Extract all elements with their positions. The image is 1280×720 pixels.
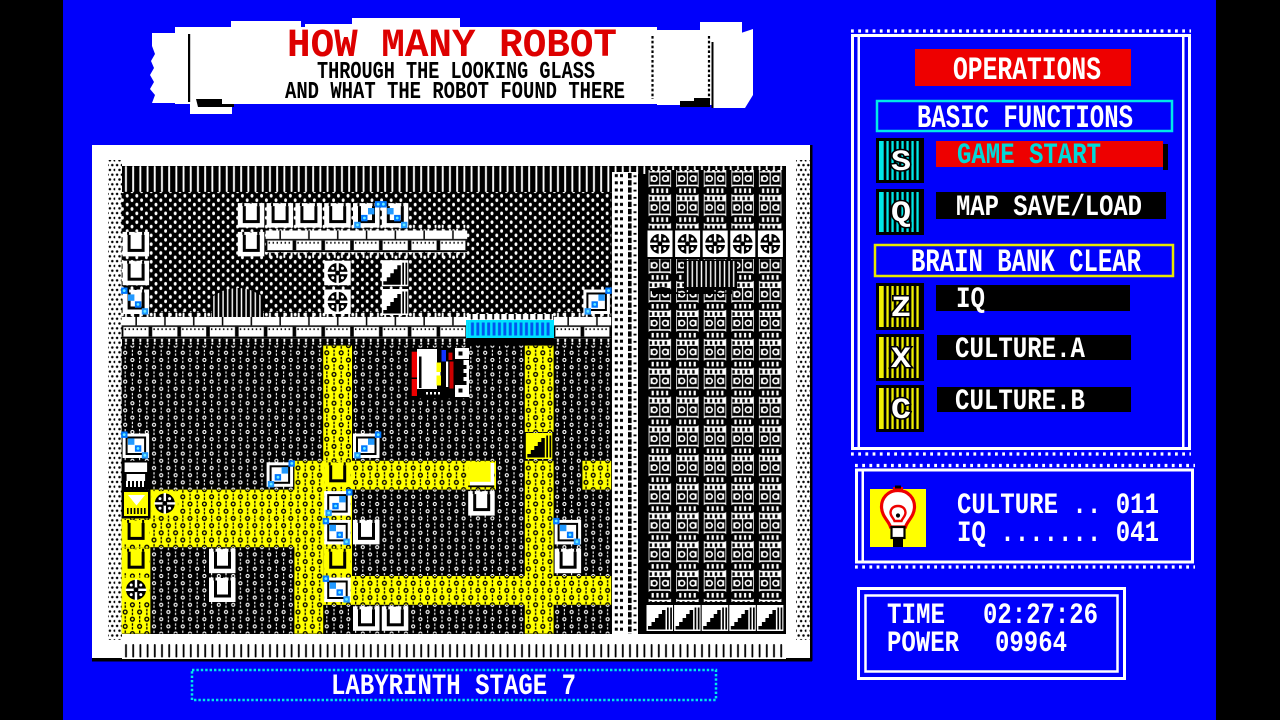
svg-text:09964: 09964	[995, 627, 1067, 661]
svg-text:CULTURE.B: CULTURE.B	[955, 385, 1085, 419]
svg-text:OPERATIONS: OPERATIONS	[953, 52, 1101, 89]
svg-text:X: X	[891, 343, 911, 377]
svg-text:Z: Z	[891, 292, 911, 326]
svg-text:GAME START: GAME START	[957, 139, 1101, 173]
svg-text:BRAIN BANK CLEAR: BRAIN BANK CLEAR	[911, 244, 1142, 281]
svg-text:MAP SAVE/LOAD: MAP SAVE/LOAD	[956, 191, 1142, 225]
svg-text:IQ ....... 041: IQ ....... 041	[957, 517, 1159, 551]
svg-text:S: S	[891, 146, 911, 180]
svg-text:LABYRINTH STAGE 7: LABYRINTH STAGE 7	[331, 670, 576, 704]
svg-text:CULTURE.A: CULTURE.A	[955, 333, 1085, 367]
svg-text:IQ: IQ	[956, 283, 985, 317]
svg-text:C: C	[891, 394, 911, 428]
svg-text:AND WHAT THE ROBOT FOUND THERE: AND WHAT THE ROBOT FOUND THERE	[285, 79, 625, 106]
svg-text:POWER: POWER	[887, 627, 959, 661]
svg-text:Q: Q	[891, 197, 911, 231]
svg-text:BASIC FUNCTIONS: BASIC FUNCTIONS	[917, 100, 1133, 137]
